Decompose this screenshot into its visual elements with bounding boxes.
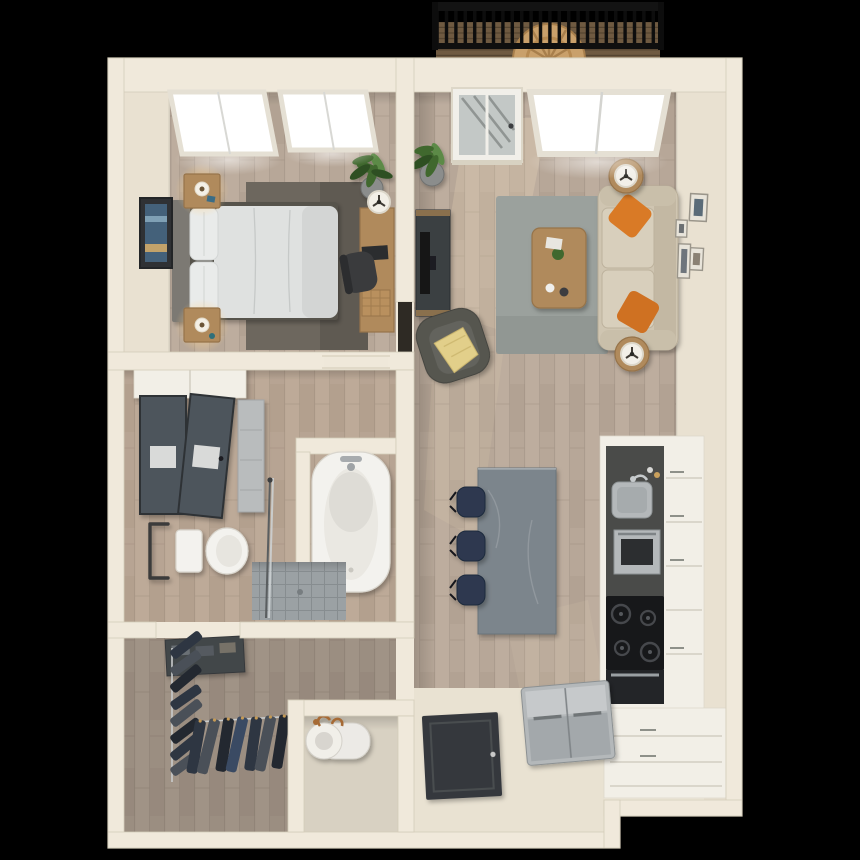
utility-west-wall	[288, 700, 304, 832]
bedroom-door-opening	[398, 302, 412, 354]
tub-drain	[349, 568, 354, 573]
south-wall-step	[604, 800, 620, 848]
floorplan-render	[0, 0, 860, 860]
folded-clothes-3	[219, 642, 236, 653]
bar-stool-2	[457, 531, 485, 561]
lamp-bulb	[200, 323, 205, 328]
railing-balusters	[434, 10, 662, 46]
cabinet-block	[604, 708, 726, 798]
art-stripe-1	[145, 216, 167, 222]
woven-basket	[362, 290, 390, 316]
bathroom-south-wall-a	[108, 622, 156, 638]
balcony-door	[452, 88, 522, 165]
bathroom-east-wall	[396, 370, 414, 622]
east-wall	[726, 58, 742, 816]
bedroom-living-wall	[396, 58, 414, 302]
desk-lamp	[368, 191, 390, 213]
console-wood-north	[416, 210, 450, 216]
balcony	[432, 2, 664, 60]
cooktop	[606, 596, 664, 670]
oven-window	[621, 539, 653, 565]
gallery-frame-1	[689, 194, 707, 222]
mirror-sink-reflection-1	[150, 446, 176, 468]
railing-bottom-rail	[434, 43, 662, 49]
toilet-seat	[216, 535, 242, 567]
tub-faucet-bar	[340, 456, 362, 462]
shower-rod-cap	[267, 477, 272, 482]
soap-bottle-2	[654, 472, 660, 478]
pipe-valve	[313, 719, 319, 725]
entry	[422, 712, 502, 800]
entry-door	[422, 712, 502, 800]
lamp-bulb	[200, 187, 205, 192]
table-lamp-overhead	[621, 343, 643, 365]
coaster-dark	[560, 288, 569, 297]
living-rug-shade	[496, 316, 608, 354]
railing-top-rail	[432, 2, 664, 11]
south-wall-kitchen	[604, 800, 742, 816]
bar-stool-3	[457, 575, 485, 605]
bar-stool-1	[457, 487, 485, 517]
wall-oven	[614, 530, 660, 574]
railing-post-left	[432, 2, 438, 50]
art-canvas	[145, 204, 167, 262]
duvet-shade	[302, 206, 338, 318]
gallery-frame-4	[677, 244, 690, 278]
refrigerator	[521, 680, 615, 765]
gallery-frame-2	[676, 220, 688, 237]
bedroom-window-1	[170, 92, 276, 154]
coaster-light	[546, 284, 555, 293]
side-table-south	[615, 337, 649, 371]
south-cabinets	[604, 708, 726, 798]
sofa	[598, 186, 678, 350]
sofa-back-cushion	[654, 190, 676, 346]
tub-water-shade	[329, 472, 373, 532]
tub-faucet	[347, 463, 355, 471]
range-oven-front	[606, 670, 664, 704]
tv-stand	[430, 256, 436, 270]
gallery-frame-3	[689, 248, 703, 271]
tv-console	[416, 210, 450, 316]
toilet-tank	[176, 530, 202, 572]
west-wall	[108, 58, 124, 848]
coffee-table	[532, 228, 586, 308]
wall-art	[140, 198, 172, 268]
bedroom-window-2	[280, 92, 376, 150]
shower-drain	[297, 589, 303, 595]
vanity-side-tower	[238, 400, 264, 512]
balcony-railing	[432, 2, 664, 50]
table-book	[545, 237, 562, 250]
door-handle	[508, 123, 513, 128]
door-threshold	[452, 160, 522, 165]
south-wall	[108, 832, 620, 848]
floorplan-screenshot	[0, 0, 860, 860]
bathroom-door-trim	[322, 356, 390, 368]
living-window	[530, 92, 668, 154]
vanity	[134, 366, 264, 518]
sink-inner	[617, 487, 647, 513]
kitchen-island	[478, 468, 556, 634]
table-plant	[552, 248, 564, 260]
television	[420, 232, 430, 294]
shower-shade	[252, 562, 346, 572]
art-stripe-2	[145, 244, 167, 252]
decor-teal	[209, 333, 215, 339]
bathroom-south-wall-b	[240, 622, 414, 638]
mirror-sink-reflection-2	[192, 445, 220, 470]
utility-north-wall	[288, 700, 414, 716]
soap-bottle-1	[647, 467, 653, 473]
heater-cap-inner	[315, 732, 333, 750]
nightstand-south	[175, 299, 229, 353]
railing-post-right	[658, 2, 664, 50]
north-wall	[108, 58, 742, 92]
utility-east-wall	[398, 716, 414, 832]
